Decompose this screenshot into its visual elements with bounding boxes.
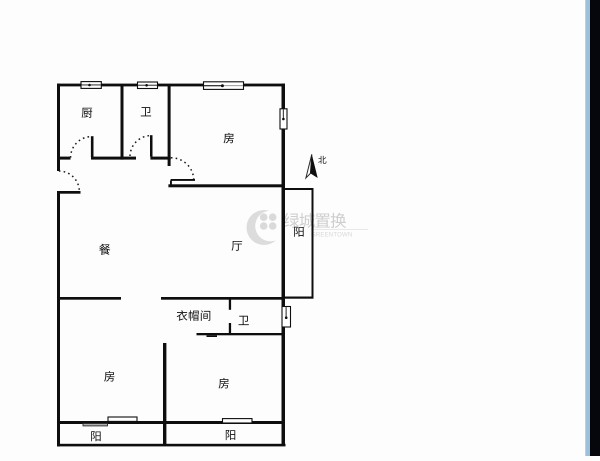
svg-text:GREENTOWN: GREENTOWN: [311, 232, 352, 238]
